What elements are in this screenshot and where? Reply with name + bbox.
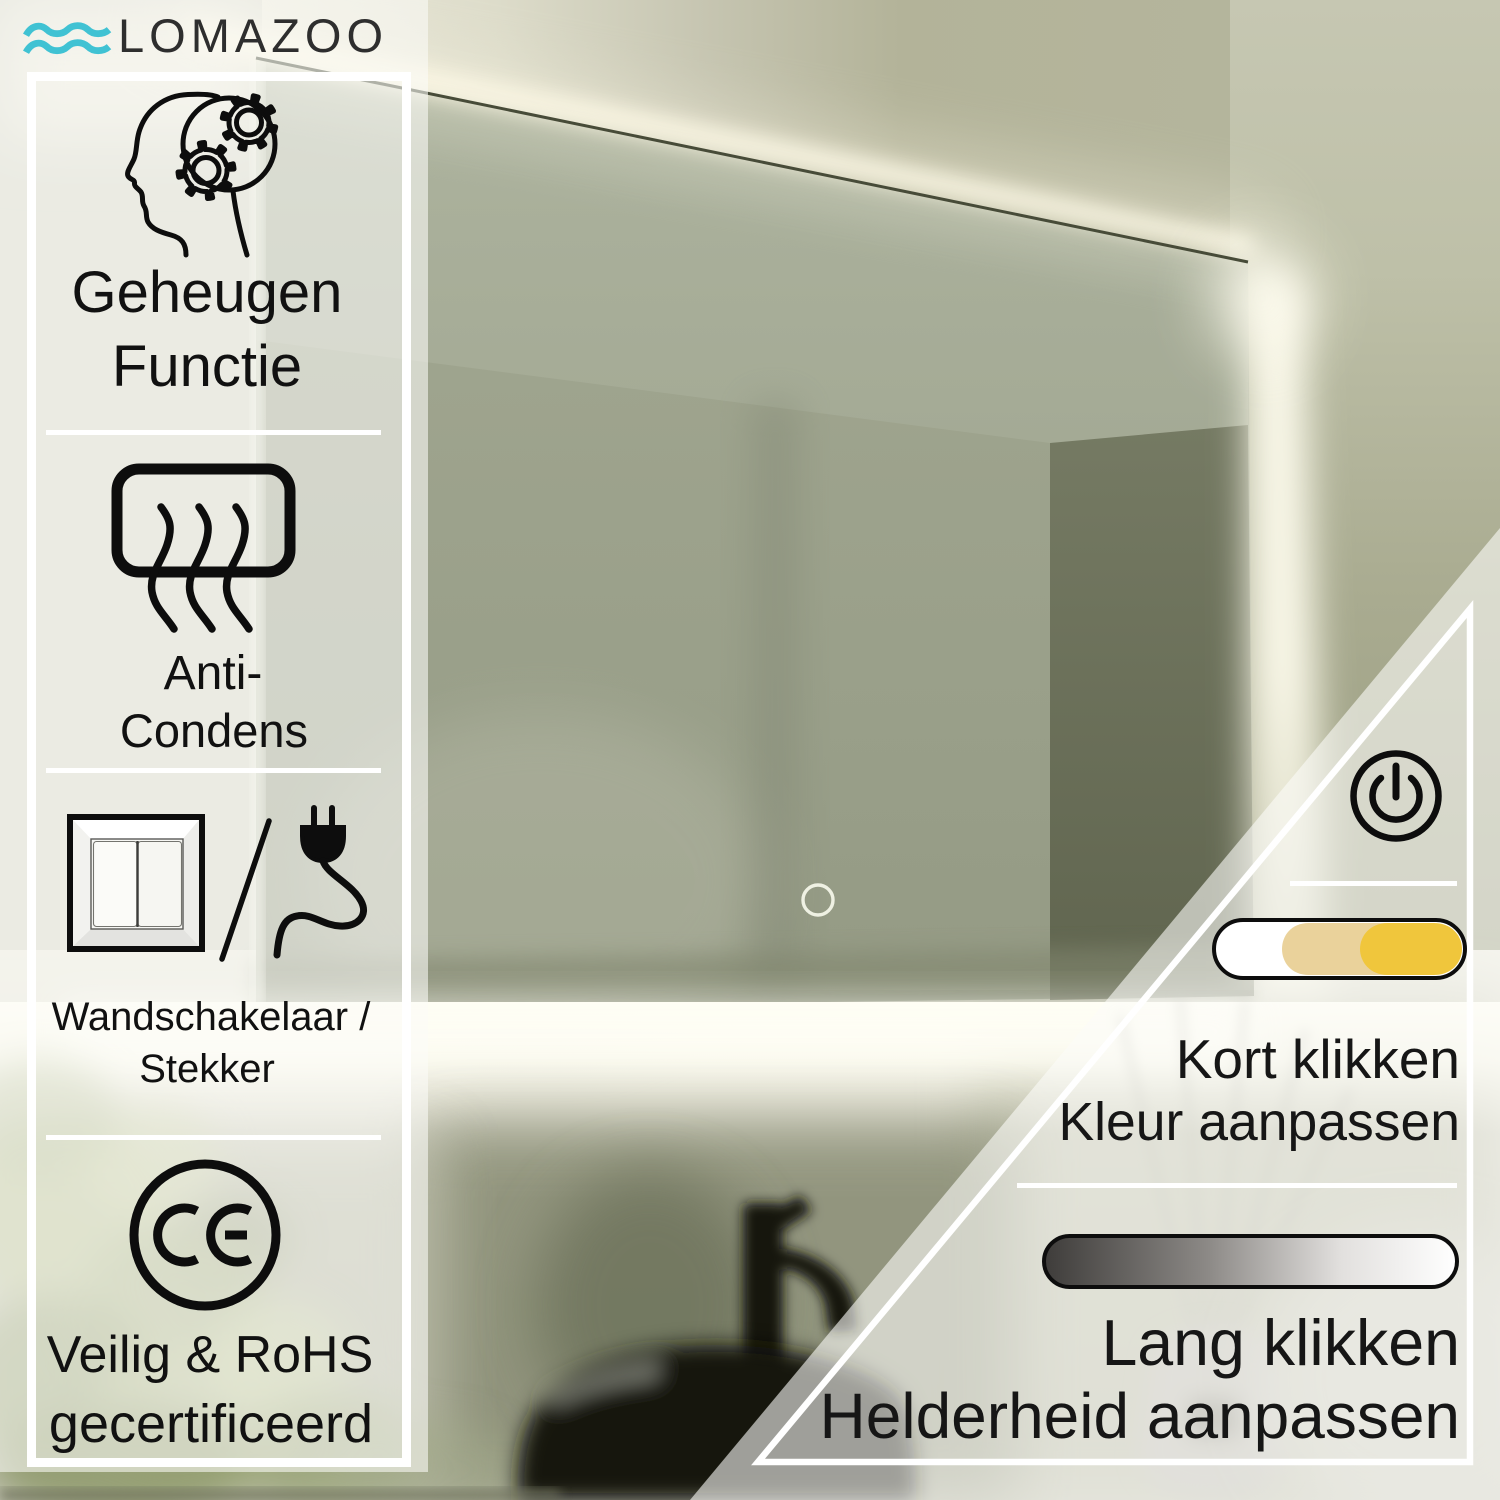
svg-text:Veilig & RoHS: Veilig & RoHS xyxy=(47,1326,374,1384)
svg-text:Kort klikken: Kort klikken xyxy=(1176,1028,1460,1090)
svg-text:Stekker: Stekker xyxy=(139,1047,275,1091)
svg-text:Wandschakelaar /: Wandschakelaar / xyxy=(52,995,372,1039)
svg-text:Kleur aanpassen: Kleur aanpassen xyxy=(1058,1093,1460,1152)
svg-text:Condens: Condens xyxy=(120,704,308,757)
svg-text:Geheugen: Geheugen xyxy=(72,260,343,325)
svg-text:Anti-: Anti- xyxy=(164,647,263,700)
svg-text:Helderheid aanpassen: Helderheid aanpassen xyxy=(820,1380,1460,1452)
svg-text:gecertificeerd: gecertificeerd xyxy=(49,1394,373,1454)
svg-text:LOMAZOO: LOMAZOO xyxy=(118,9,388,62)
svg-text:Functie: Functie xyxy=(112,334,302,399)
svg-text:Lang klikken: Lang klikken xyxy=(1101,1307,1460,1379)
